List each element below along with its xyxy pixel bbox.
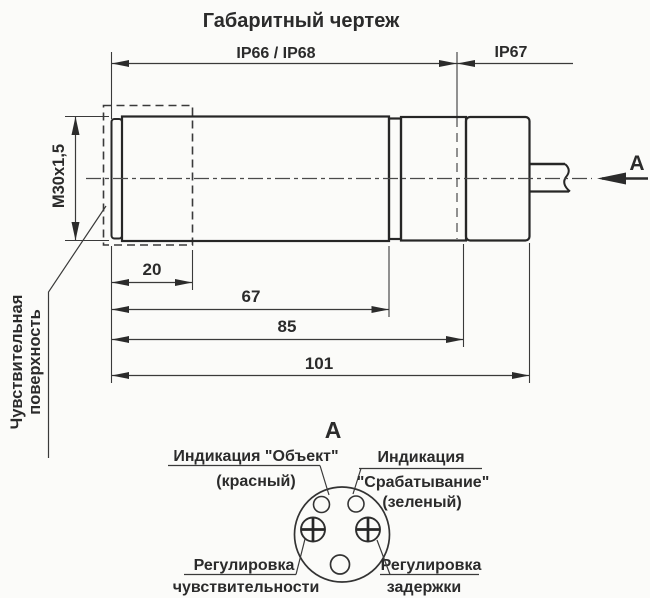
arrowhead-left-icon (112, 306, 130, 313)
arrowhead-up-icon (72, 117, 80, 136)
dim-101-label: 101 (305, 354, 333, 373)
arrowhead-left-icon (112, 279, 130, 286)
trigger-indicator-label-line2: "Срабатывание" (357, 474, 490, 491)
dim-85-label: 85 (278, 317, 297, 336)
view-a-title: А (325, 417, 342, 443)
arrowhead-right-icon (372, 306, 390, 313)
dim-67-label: 67 (242, 287, 261, 306)
sensitivity-label-line2: чувствительности (173, 579, 320, 596)
section-arrow-label: А (629, 152, 644, 175)
arrowhead-down-icon (72, 222, 80, 241)
object-led-circle (314, 497, 330, 513)
rear-face-circle (295, 487, 390, 582)
cable-break-squiggle (564, 164, 570, 192)
connector-key-circle (331, 555, 350, 574)
arrowhead-right-icon (175, 279, 193, 286)
thread-label: М30х1,5 (50, 144, 68, 208)
dimensional-drawing: Габаритный чертеж IP66 / IP68 IP67 А М30… (0, 0, 650, 598)
arrowhead-right-icon (512, 372, 530, 379)
arrowhead-left-icon (112, 60, 130, 67)
trigger-indicator-label-line1: Индикация (377, 449, 464, 466)
sensitivity-label-line1: Регулировка (194, 557, 295, 574)
trigger-led-circle (348, 496, 364, 512)
sensitive-surface-leader (49, 206, 107, 458)
dim-20-label: 20 (143, 260, 162, 279)
sensitive-surface-label-line2: поверхность (26, 309, 44, 414)
sensitive-surface-label-line1: Чувствительная (8, 295, 26, 430)
section-arrowhead-icon (597, 173, 626, 185)
object-indicator-label-line2: (красный) (216, 473, 295, 490)
arrowhead-right-icon (439, 60, 457, 67)
page-title: Габаритный чертеж (203, 10, 400, 32)
arrowhead-left-icon (112, 372, 130, 379)
sensitivity-leader (296, 539, 305, 575)
arrowhead-right-icon (446, 336, 464, 343)
delay-label-line2: задержки (387, 579, 461, 596)
arrowhead-left-icon (112, 336, 130, 343)
delay-label-line1: Регулировка (381, 557, 482, 574)
arrowhead-left-icon (457, 60, 475, 67)
object-indicator-label-line1: Индикация "Объект" (173, 448, 338, 465)
trigger-indicator-label-line3: (зеленый) (382, 494, 461, 511)
ip66-ip68-label: IP66 / IP68 (236, 45, 315, 62)
ip67-label: IP67 (495, 44, 528, 61)
drawing-sheet: Габаритный чертеж IP66 / IP68 IP67 А М30… (0, 0, 650, 598)
